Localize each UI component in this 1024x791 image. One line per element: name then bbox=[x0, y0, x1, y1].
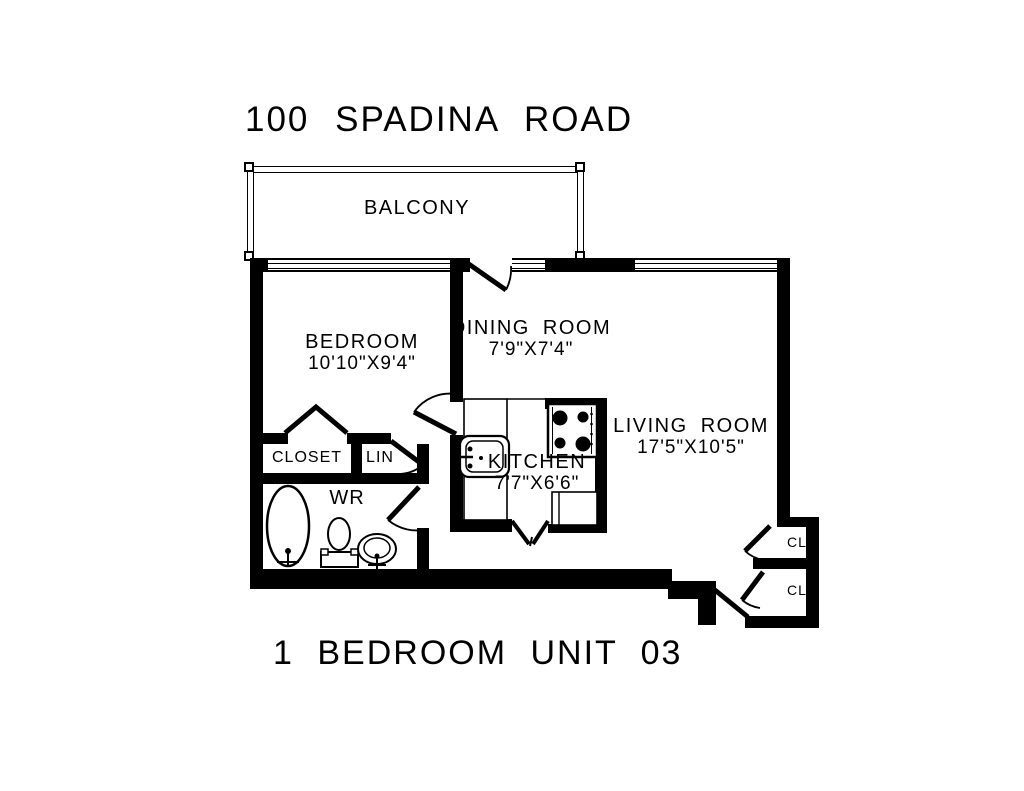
stove bbox=[548, 404, 597, 457]
lower-cl-door-swing bbox=[742, 572, 763, 608]
washroom-door-swing bbox=[388, 487, 428, 530]
kitchen-counter-bottom bbox=[552, 492, 597, 525]
bedroom-door-swing bbox=[414, 394, 456, 434]
kitchen-bifold-door bbox=[512, 521, 548, 546]
entry-door-swing bbox=[702, 586, 748, 617]
doors-and-fixtures bbox=[0, 0, 1024, 791]
closet-label: CLOSET bbox=[272, 449, 342, 467]
kitchen-label: KITCHEN 7'7"X6'6" bbox=[488, 451, 586, 495]
floor-plan: 100 SPADINA ROAD 1 BEDROOM UNIT 03 bbox=[0, 0, 1024, 791]
linen-door-swing bbox=[391, 441, 423, 474]
balcony-door-swing bbox=[463, 260, 511, 290]
bedroom-label: BEDROOM 10'10"X9'4" bbox=[305, 331, 419, 375]
linen-label: LIN bbox=[366, 449, 394, 467]
washroom-label: WR bbox=[329, 487, 364, 509]
bathtub bbox=[267, 486, 309, 567]
upper-cl-label: CL bbox=[787, 535, 807, 551]
bathroom-sink bbox=[358, 534, 396, 569]
living-room-label: LIVING ROOM 17'5"X10'5" bbox=[613, 415, 769, 459]
balcony-label: BALCONY bbox=[364, 197, 470, 219]
upper-cl-door-swing bbox=[745, 526, 770, 560]
dining-room-label: DINING ROOM 7'9"X7'4" bbox=[451, 317, 611, 361]
toilet bbox=[321, 518, 358, 567]
closet-bifold-door bbox=[285, 407, 347, 433]
lower-cl-label: CL bbox=[787, 583, 807, 599]
